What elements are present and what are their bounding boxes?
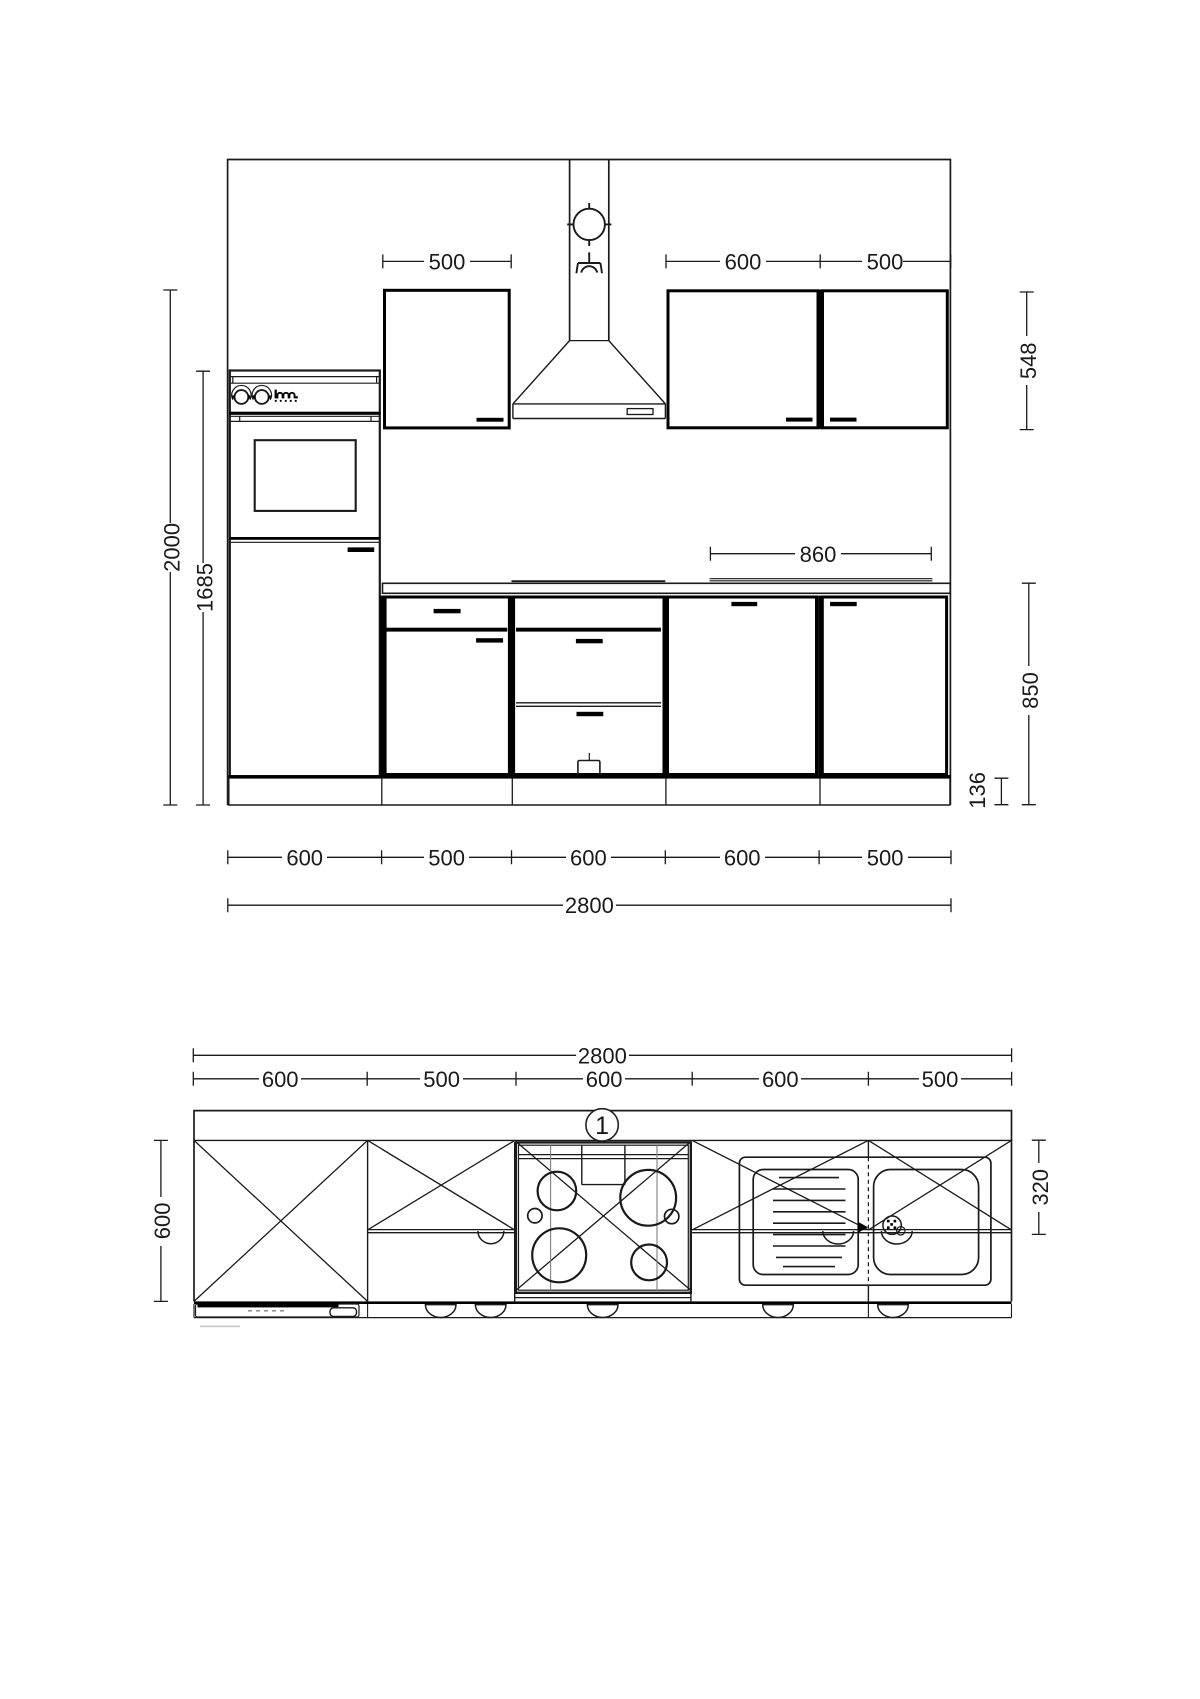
svg-text:600: 600	[762, 1067, 799, 1092]
svg-text:600: 600	[724, 845, 761, 870]
svg-text:548: 548	[1016, 342, 1041, 379]
svg-text:2000: 2000	[160, 523, 185, 572]
svg-text:2800: 2800	[565, 893, 614, 918]
svg-text:500: 500	[867, 845, 904, 870]
svg-text:600: 600	[286, 845, 323, 870]
svg-text:600: 600	[570, 845, 607, 870]
svg-text:600: 600	[725, 250, 762, 275]
svg-text:500: 500	[423, 1067, 460, 1092]
svg-text:500: 500	[922, 1067, 959, 1092]
svg-text:500: 500	[428, 845, 465, 870]
svg-text:320: 320	[1028, 1169, 1053, 1206]
svg-text:136: 136	[965, 772, 990, 809]
svg-text:500: 500	[867, 250, 904, 275]
svg-text:1685: 1685	[192, 563, 217, 612]
svg-text:600: 600	[586, 1067, 623, 1092]
svg-text:2800: 2800	[578, 1043, 627, 1068]
svg-text:500: 500	[429, 250, 466, 275]
svg-text:1: 1	[595, 1112, 609, 1140]
svg-text:600: 600	[262, 1067, 299, 1092]
svg-text:860: 860	[800, 542, 837, 567]
svg-text:850: 850	[1018, 672, 1043, 709]
svg-text:600: 600	[150, 1203, 175, 1240]
